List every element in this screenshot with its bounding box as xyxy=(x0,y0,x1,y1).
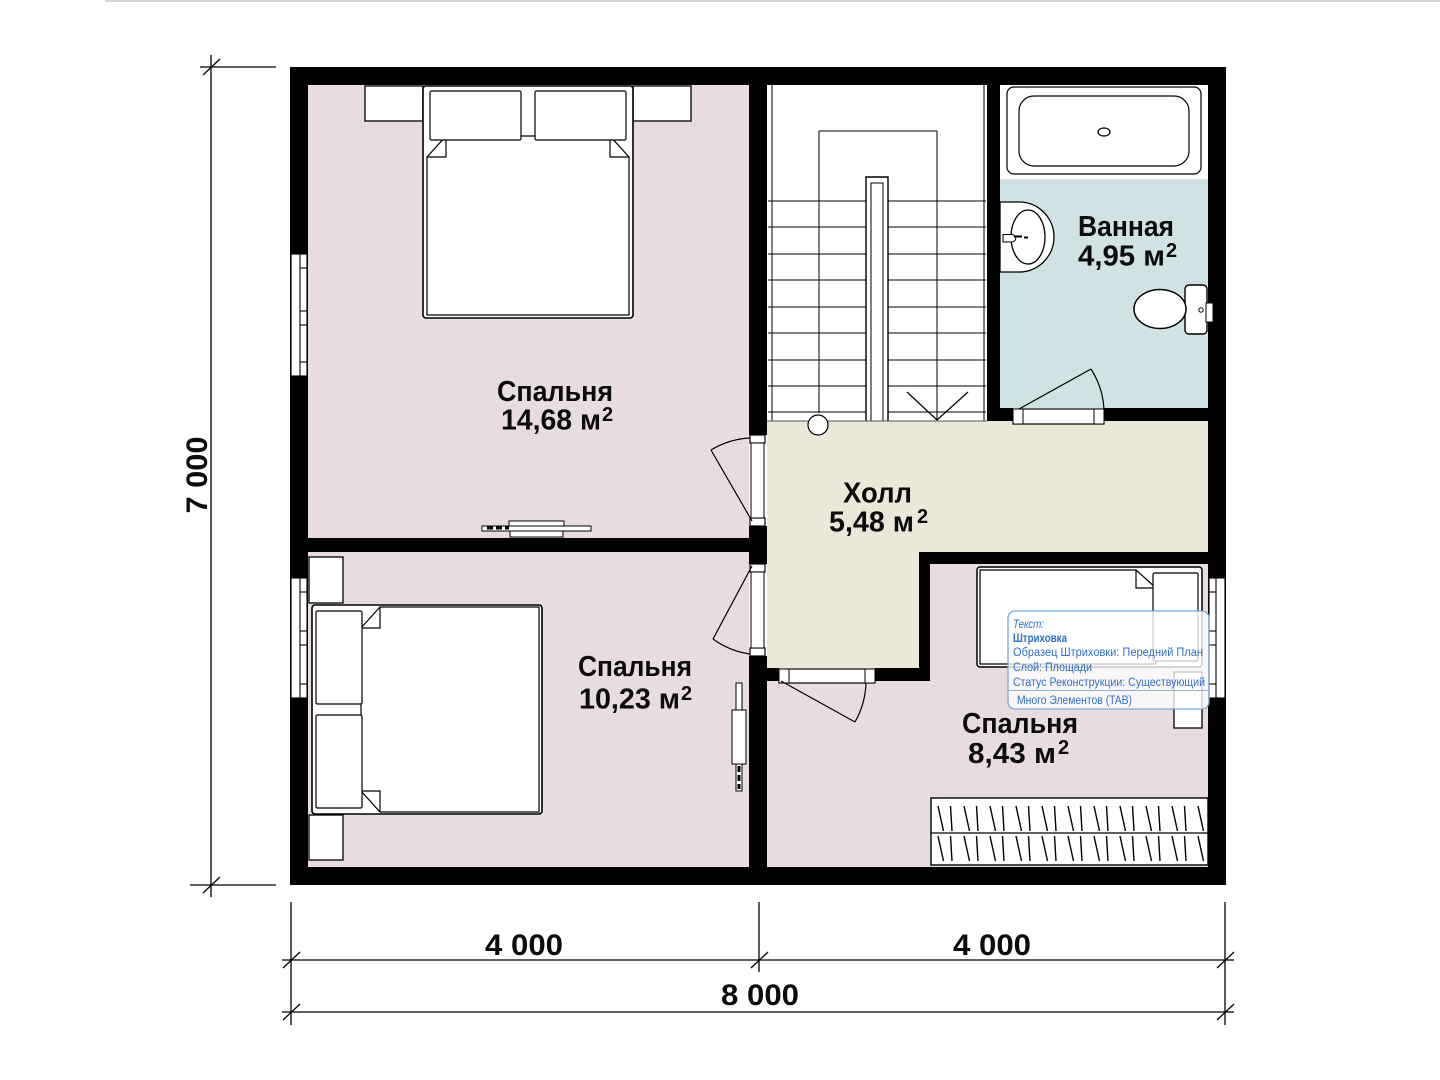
svg-text:8,43 м: 8,43 м xyxy=(968,738,1056,770)
svg-text:2: 2 xyxy=(681,683,692,705)
svg-text:2: 2 xyxy=(1166,240,1177,262)
svg-text:Статус Реконструкции: Существу: Статус Реконструкции: Существующий xyxy=(1013,677,1205,689)
svg-text:14,68 м: 14,68 м xyxy=(501,405,601,437)
svg-text:4 000: 4 000 xyxy=(953,929,1031,962)
svg-text:4 000: 4 000 xyxy=(485,929,563,962)
svg-text:Текст:: Текст: xyxy=(1013,619,1044,631)
svg-text:Спальня: Спальня xyxy=(497,376,613,408)
svg-text:2: 2 xyxy=(602,404,613,426)
svg-text:Спальня: Спальня xyxy=(578,651,692,683)
svg-text:Ванная: Ванная xyxy=(1078,211,1174,243)
svg-text:10,23 м: 10,23 м xyxy=(579,684,680,716)
svg-text:2: 2 xyxy=(917,506,928,528)
svg-text:Спальня: Спальня xyxy=(962,708,1078,740)
svg-text:Холл: Холл xyxy=(843,478,912,510)
svg-text:5,48 м: 5,48 м xyxy=(829,507,914,539)
svg-text:Много Элементов (TAB): Много Элементов (TAB) xyxy=(1017,695,1132,707)
svg-text:4,95 м: 4,95 м xyxy=(1078,241,1165,273)
svg-text:2: 2 xyxy=(1058,737,1069,759)
svg-text:Слой: Площади: Слой: Площади xyxy=(1013,662,1092,674)
svg-text:Образец Штриховки: Передний Пл: Образец Штриховки: Передний План xyxy=(1013,647,1203,659)
svg-text:7 000: 7 000 xyxy=(181,437,214,514)
svg-text:8 000: 8 000 xyxy=(721,979,799,1012)
svg-text:Штриховка: Штриховка xyxy=(1013,633,1068,645)
